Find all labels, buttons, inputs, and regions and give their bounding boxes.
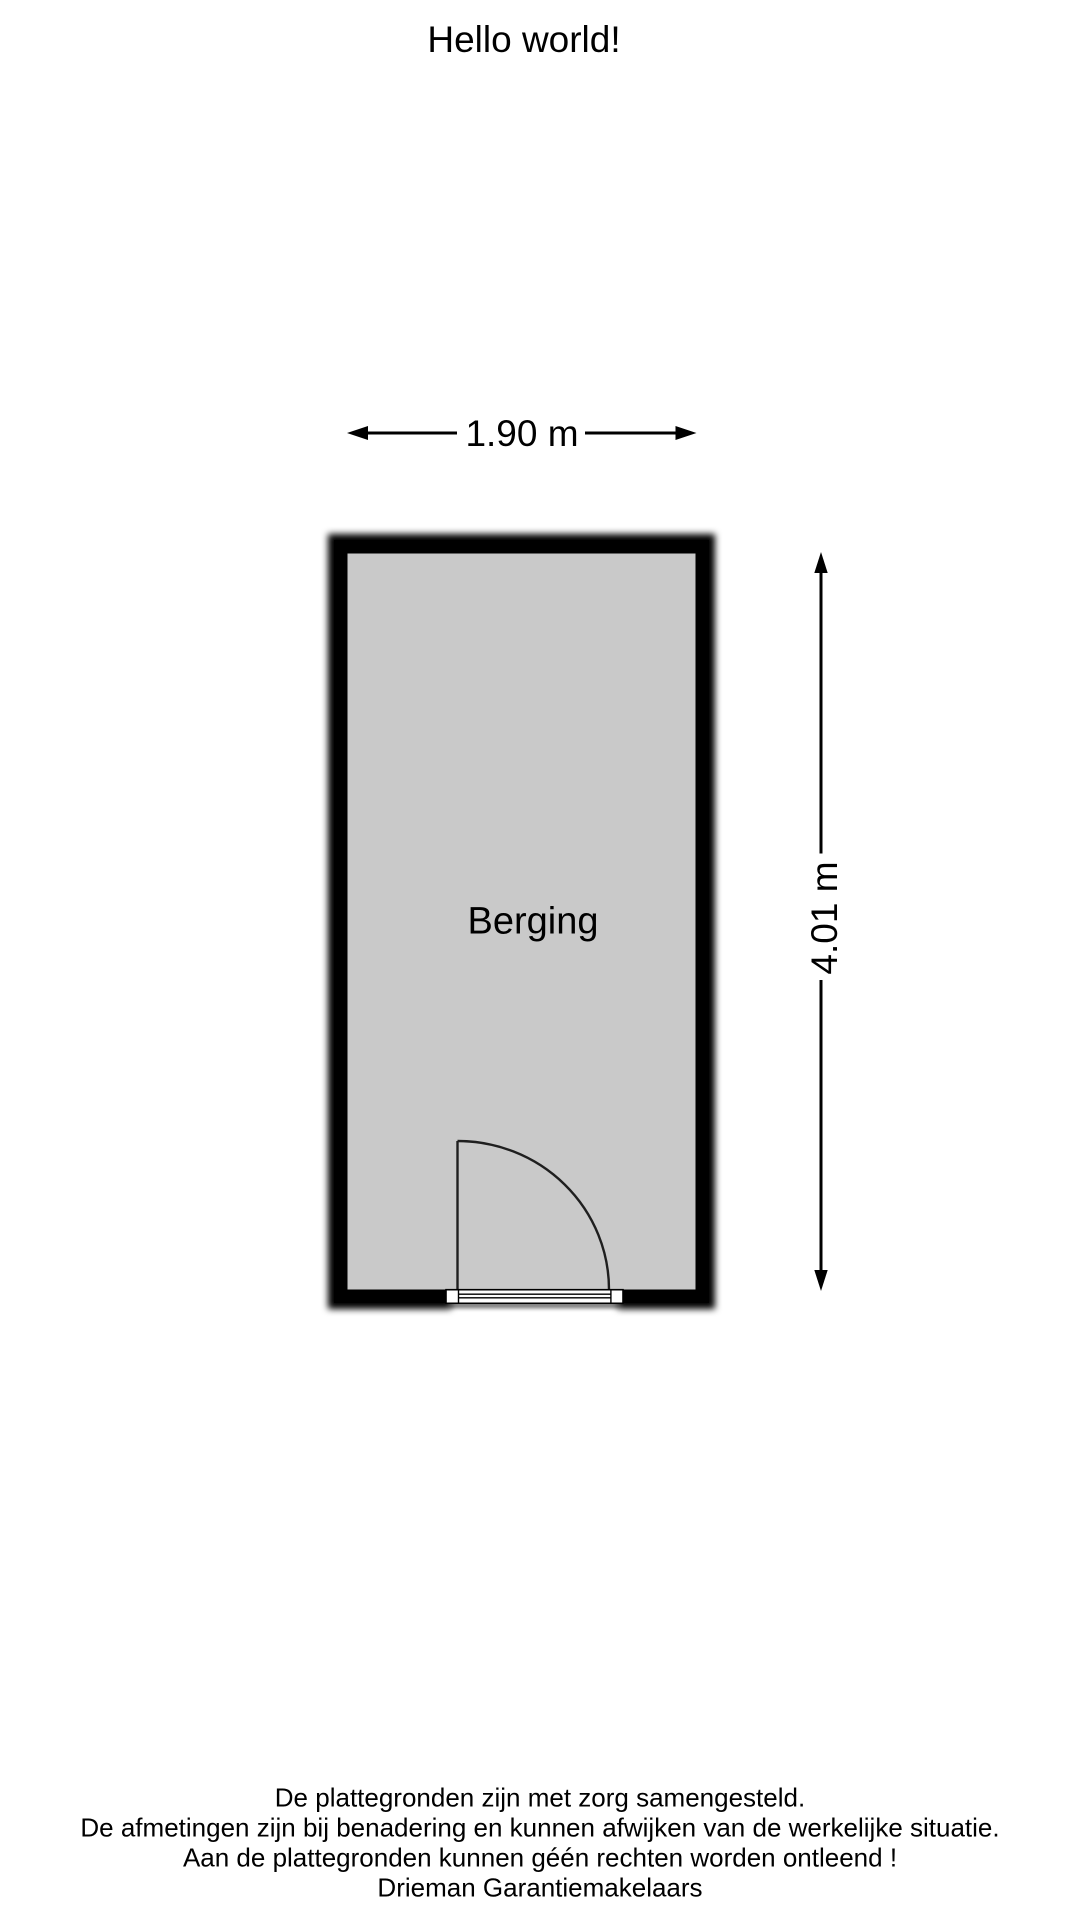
svg-text:Berging: Berging [468, 901, 599, 943]
svg-text:De plattegronden zijn met zorg: De plattegronden zijn met zorg samengest… [275, 1783, 805, 1813]
svg-text:4.01 m: 4.01 m [804, 861, 845, 974]
svg-text:1.90 m: 1.90 m [465, 413, 578, 454]
svg-text:De afmetingen zijn bij benader: De afmetingen zijn bij benadering en kun… [80, 1813, 999, 1843]
svg-text:Hello world!: Hello world! [427, 19, 620, 60]
svg-text:Drieman Garantiemakelaars: Drieman Garantiemakelaars [377, 1873, 702, 1903]
svg-text:Aan de plattegronden kunnen gé: Aan de plattegronden kunnen géén rechten… [183, 1843, 897, 1873]
